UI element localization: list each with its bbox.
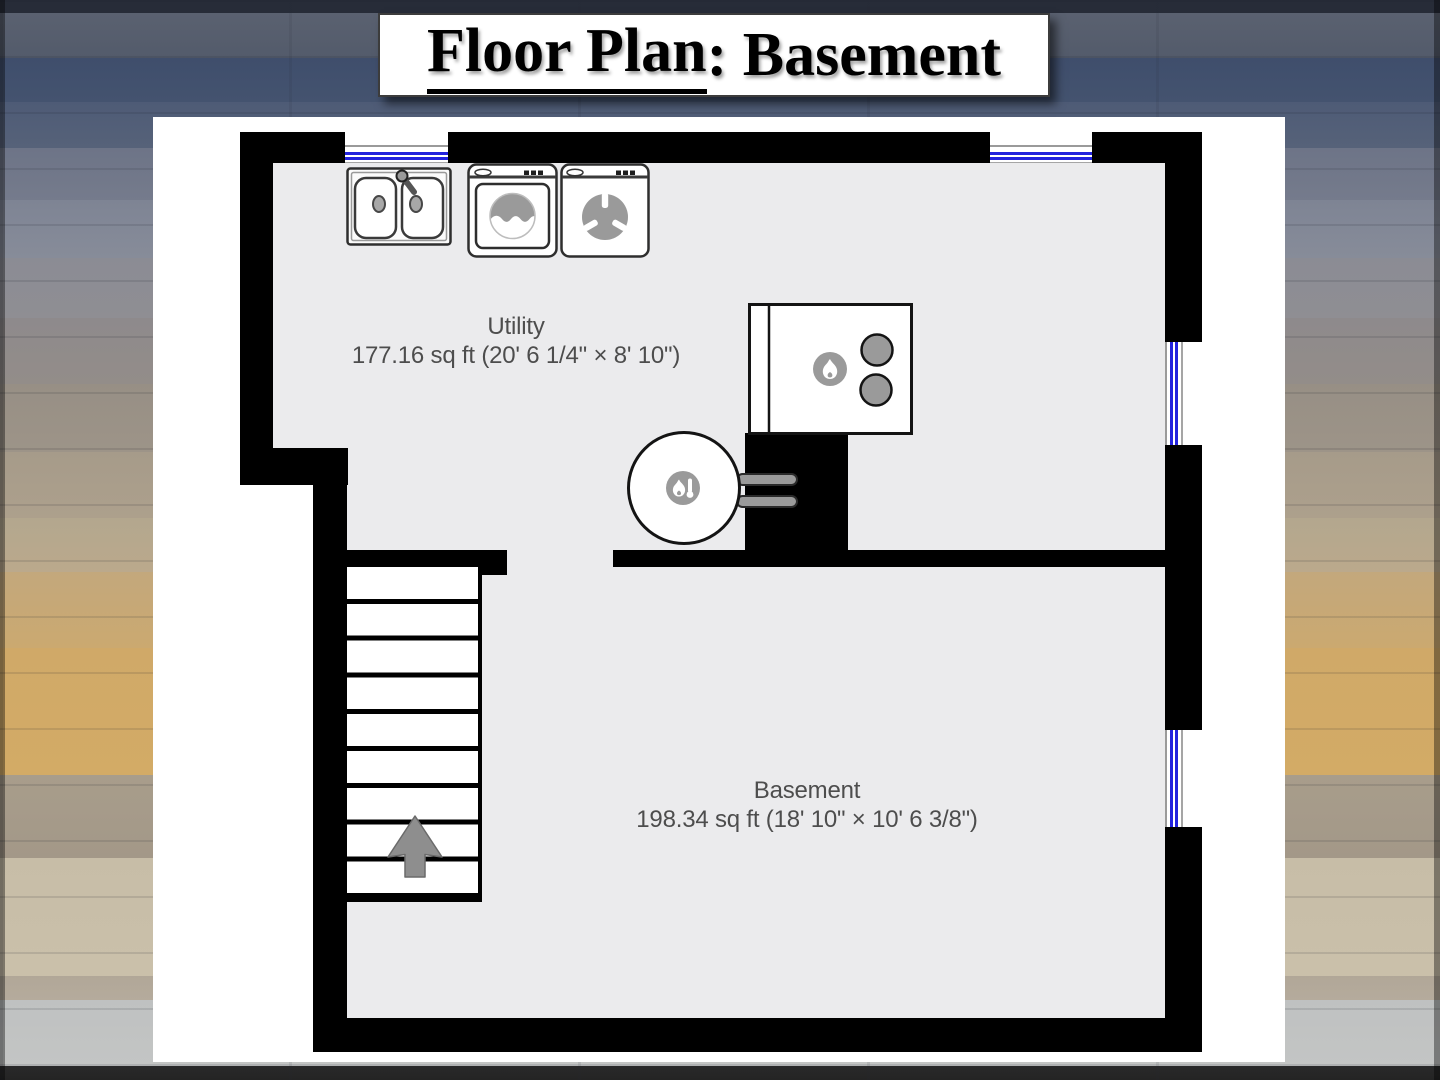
utility-room-label: Utility 177.16 sq ft (20' 6 1/4" × 8' 10… (316, 312, 716, 370)
stairs-up-arrow-icon (387, 815, 443, 878)
double-sink-icon (346, 167, 452, 246)
flame-icon (813, 352, 847, 386)
window-icon (345, 132, 448, 163)
wall-left-lower (313, 448, 347, 1052)
window-icon (1165, 730, 1202, 827)
window-icon (1165, 342, 1202, 445)
flame-thermometer-icon (666, 471, 700, 505)
room-name: Basement (607, 776, 1007, 805)
room-area: 177.16 sq ft (20' 6 1/4" × 8' 10") (316, 341, 716, 370)
washer-icon (467, 163, 558, 258)
interior-wall-room-divider (613, 550, 1165, 567)
page-title: Floor Plan: Basement (378, 13, 1050, 97)
floor-plan-screenshot: Utility 177.16 sq ft (20' 6 1/4" × 8' 10… (0, 0, 1440, 1080)
room-name: Utility (316, 312, 716, 341)
interior-wall-stair-top (347, 550, 507, 567)
wall-right (1165, 132, 1202, 1052)
room-area: 198.34 sq ft (18' 10" × 10' 6 3/8") (607, 805, 1007, 834)
dryer-icon (560, 163, 650, 258)
basement-room-label: Basement 198.34 sq ft (18' 10" × 10' 6 3… (607, 776, 1007, 834)
interior-wall-door-jamb (480, 567, 507, 575)
water-heater-icon (626, 430, 806, 550)
title-underlined-text: Floor Plan (427, 16, 707, 94)
window-icon (990, 132, 1092, 163)
title-rest-text: : Basement (707, 20, 1001, 91)
wall-left-upper (240, 132, 273, 485)
furnace-icon (748, 303, 913, 435)
wall-bottom (313, 1018, 1202, 1052)
